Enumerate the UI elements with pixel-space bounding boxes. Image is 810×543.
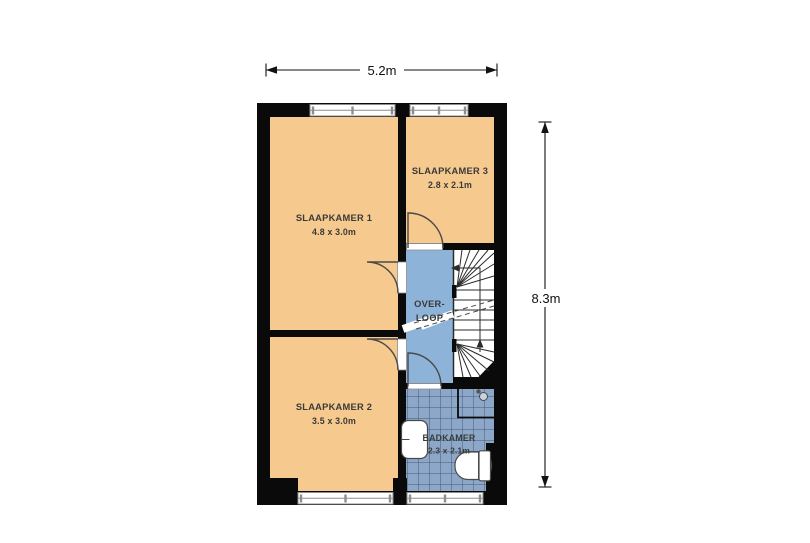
window-slaapkamer2 (298, 493, 393, 505)
room-slaapkamer1-floor (270, 117, 398, 330)
wall-segment (443, 243, 494, 250)
window-slaapkamer3 (410, 105, 468, 117)
arrowhead-up-icon (541, 122, 549, 133)
door-opening-slaapkamer3 (407, 244, 443, 251)
shower-head-icon (476, 389, 480, 393)
wall-segment (398, 117, 406, 262)
stair-newel (452, 285, 457, 298)
window-badkamer (407, 493, 483, 505)
door-opening-slaapkamer1 (398, 262, 407, 293)
door-opening-badkamer (408, 384, 441, 390)
room-size: 2.3 x 2.1m (428, 446, 470, 456)
room-name: OVER- (414, 299, 445, 309)
window-slaapkamer1 (310, 105, 395, 117)
height-dimension-label: 8.3m (532, 291, 561, 306)
room-name: SLAAPKAMER 2 (296, 402, 372, 412)
room-name: BADKAMER (423, 433, 476, 443)
room-slaapkamer2-floor (270, 337, 398, 491)
room-size: 2.8 x 2.1m (428, 180, 472, 190)
floor-plan: 5.2m 8.3m (0, 0, 810, 543)
toilet-cistern (479, 451, 491, 481)
dimension-height: 8.3m (523, 122, 567, 487)
dimension-width: 5.2m (266, 61, 497, 79)
wall-segment (441, 383, 453, 389)
room-size: 4.8 x 3.0m (312, 227, 356, 237)
wall-segment (398, 383, 408, 389)
room-name: LOOP (416, 313, 443, 323)
width-dimension-label: 5.2m (368, 63, 397, 78)
room-name: SLAAPKAMER 1 (296, 213, 372, 223)
wall-segment (270, 330, 398, 337)
shower-head-icon (480, 393, 488, 401)
wall-pier (257, 478, 298, 505)
arrowhead-left-icon (266, 66, 277, 74)
room-name: SLAAPKAMER 3 (412, 166, 488, 176)
door-opening-slaapkamer2 (398, 339, 407, 370)
arrowhead-down-icon (541, 476, 549, 487)
wall-pier (393, 478, 407, 505)
stair-newel (452, 339, 457, 352)
room-size: 3.5 x 3.0m (312, 416, 356, 426)
arrowhead-right-icon (486, 66, 497, 74)
